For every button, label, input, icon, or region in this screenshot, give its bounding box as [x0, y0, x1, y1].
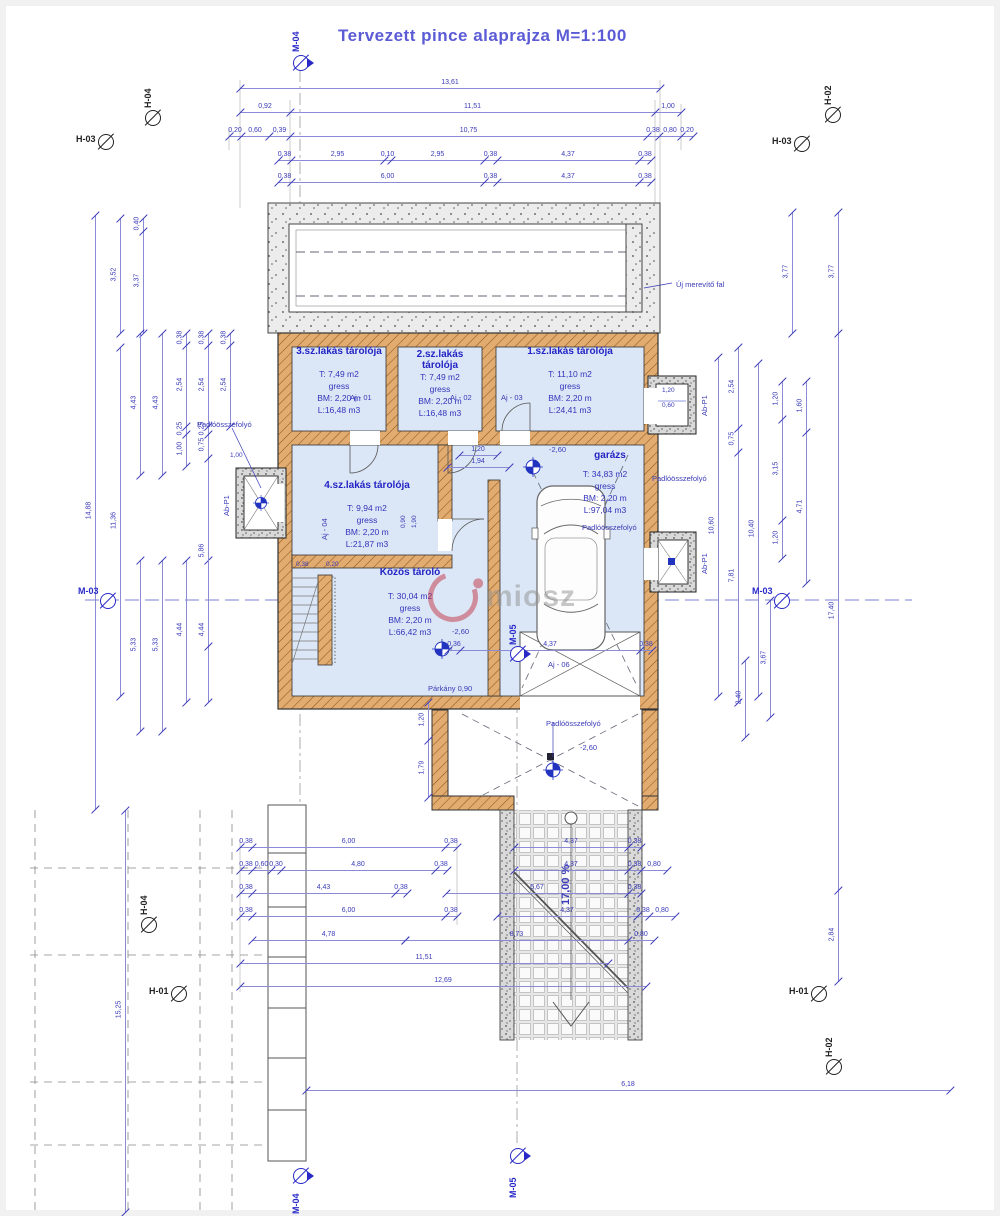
dimension-label: 6,00: [324, 906, 374, 915]
section-marker-label: H-01: [149, 986, 169, 996]
annotation-label: Padlóösszefolyó: [546, 719, 601, 728]
dimension-label: 0,92: [240, 102, 290, 111]
annotation-label: Ab-P1: [700, 395, 709, 416]
dimension-line: [428, 702, 429, 797]
dimension-line: [186, 333, 187, 466]
dimension-label: 12,69: [418, 976, 468, 985]
room-volume: L:24,41 m3: [496, 404, 644, 416]
annotation-label: Aj - 06: [548, 660, 570, 669]
annotation-label: Aj - 03: [501, 393, 523, 402]
room-volume: L:16,48 m3: [292, 404, 386, 416]
dimension-label: 1,94: [453, 457, 503, 466]
section-marker-label: M-05: [508, 1177, 518, 1198]
dimension-line: [230, 333, 231, 426]
dimension-label: 2,54: [220, 353, 229, 415]
dimension-line: [306, 1090, 950, 1091]
dimension-label: 0,38: [221, 837, 271, 846]
dimension-line: [240, 88, 660, 89]
dimension-label: 14,88: [85, 480, 94, 542]
dimension-line: [718, 357, 719, 696]
annotation-label: Ab-P1: [700, 553, 709, 574]
room-stats-storage4: T: 9,94 m2 gress BM: 2,20 m L:21,87 m3: [292, 502, 442, 550]
dimension-label: 4,78: [304, 930, 354, 939]
room-height: BM: 2,20 m: [292, 392, 386, 404]
dimension-line: [208, 333, 209, 646]
dimension-label: 8,73: [492, 930, 542, 939]
dimension-label: 0,30: [251, 860, 301, 869]
room-stats-storage1: T: 11,10 m2 gress BM: 2,20 m L:24,41 m3: [496, 368, 644, 416]
dimension-label: 3,67: [760, 626, 769, 688]
dimension-label: 0,36: [429, 640, 479, 649]
dimension-label: 13,61: [425, 78, 475, 87]
room-height: BM: 2,20 m: [555, 492, 655, 504]
section-marker-icon: [98, 134, 114, 150]
dimension-line: [186, 560, 187, 702]
dimension-label: 11,51: [448, 102, 498, 111]
annotation-label: 17,00 %: [560, 865, 572, 905]
dimension-label: 0,39: [255, 126, 305, 135]
dimension-label: 3,37: [133, 250, 142, 312]
dimension-line: [405, 940, 654, 941]
dimension-line: [782, 381, 783, 558]
annotation-label: Aj - 04: [320, 518, 329, 540]
dimension-label: 0,38: [610, 837, 660, 846]
section-marker-icon: [510, 1148, 526, 1164]
dimension-label: 4,43: [299, 883, 349, 892]
annotation-label: Padlóösszefolyó: [582, 523, 637, 532]
section-marker-icon: [293, 1168, 309, 1184]
annotation-label: -2,60: [549, 445, 566, 454]
annotation-label: Ab-P1: [222, 495, 231, 516]
section-marker-label: M-05: [508, 624, 518, 645]
dimension-line: [447, 467, 509, 468]
dimension-label: 4,43: [130, 372, 139, 434]
dimension-label: 0,38: [260, 150, 310, 159]
dimension-label: 0,38: [221, 906, 271, 915]
annotation-label: 0,90: [400, 515, 407, 528]
dimension-label: 4,71: [796, 475, 805, 537]
room-stats-garage: T: 34,83 m2 gress BM: 2,20 m L:97,04 m3: [555, 468, 655, 516]
dimension-label: 0,38: [620, 172, 670, 181]
dimension-line: [792, 212, 793, 333]
dimension-label: 1,00: [176, 418, 185, 480]
annotation-label: Padlóösszefolyó: [197, 420, 252, 429]
dimension-line: [162, 333, 163, 475]
section-marker-icon: [794, 136, 810, 152]
dimension-label: 1,60: [796, 374, 805, 436]
room-stats-storage3: T: 7,49 m2 gress BM: 2,20 m L:16,48 m3: [292, 368, 386, 416]
dimension-line: [125, 810, 126, 1212]
room-label-garage: garázs: [560, 450, 660, 461]
floor-plan-page: Tervezett pince alaprajza M=1:100: [0, 0, 1000, 1216]
dimension-line: [162, 560, 163, 731]
room-finish: gress: [292, 380, 386, 392]
section-marker-label: H-02: [823, 85, 833, 105]
room-volume: L:16,48 m3: [398, 407, 482, 419]
section-marker-label: M-03: [752, 586, 773, 596]
dimension-label: 0,80: [629, 860, 679, 869]
dimension-label: 2,40: [735, 666, 744, 728]
annotation-label: Padlóösszefolyó: [652, 474, 707, 483]
annotation-label: Aj - 01: [350, 393, 372, 402]
dimension-label: 1,00: [643, 102, 693, 111]
dimension-label: 4,37: [543, 150, 593, 159]
dimension-label: 1,20: [772, 368, 781, 430]
room-volume: L:97,04 m3: [555, 504, 655, 516]
dimension-line: [838, 212, 839, 981]
dimension-label: 0,10: [363, 150, 413, 159]
section-marker-label: H-04: [143, 88, 153, 108]
dimension-label: 0,38: [620, 150, 670, 159]
section-marker-icon: [171, 986, 187, 1002]
dimension-label: 3,52: [110, 243, 119, 305]
dimension-label: 2,95: [313, 150, 363, 159]
dimension-label: 1,20: [453, 445, 503, 454]
room-area: T: 9,94 m2: [292, 502, 442, 514]
dimension-label: 6,00: [324, 837, 374, 846]
dimension-label: 5,67: [512, 883, 562, 892]
dimension-line: [143, 218, 144, 333]
room-area: T: 11,10 m2: [496, 368, 644, 380]
dimension-line: [738, 347, 739, 702]
room-label-storage3: 3.sz.lakás tárolója: [292, 346, 386, 357]
dimension-label: 3,77: [782, 240, 791, 302]
dimension-line: [514, 870, 667, 871]
section-marker-label: M-03: [78, 586, 99, 596]
annotation-label: 0,60: [662, 402, 675, 409]
room-label-storage2: 2.sz.lakás tárolója: [398, 349, 482, 371]
room-height: BM: 2,20 m: [292, 526, 442, 538]
dimension-label: 15,25: [115, 979, 124, 1041]
annotation-label: 1,00: [230, 452, 243, 459]
dimension-line: [252, 940, 405, 941]
annotation-label: 1,20: [662, 387, 675, 394]
dimension-label: 4,37: [525, 640, 575, 649]
dimension-label: 5,86: [198, 520, 207, 582]
dimension-line: [514, 847, 641, 848]
section-marker-icon: [293, 55, 309, 71]
dimension-label: 0,20: [662, 126, 712, 135]
section-marker-label: H-03: [772, 136, 792, 146]
dimension-label: 0,75: [728, 408, 737, 470]
annotation-label: -2,60: [452, 627, 469, 636]
section-marker-label: H-04: [139, 895, 149, 915]
dimension-label: 4,44: [176, 599, 185, 661]
dimension-label: 0,38: [221, 883, 271, 892]
annotation-label: 0,20: [326, 561, 339, 568]
dimension-label: 4,43: [152, 372, 161, 434]
dimension-label: 6,00: [363, 172, 413, 181]
dimension-label: 0,38: [426, 837, 476, 846]
dimension-label: 0,38: [416, 860, 466, 869]
dimension-label: 0,38: [621, 640, 671, 649]
room-area: T: 34,83 m2: [555, 468, 655, 480]
annotation-label: Párkány 0,90: [428, 684, 472, 693]
room-label-storage1: 1.sz.lakás tárolója: [496, 346, 644, 357]
dimension-line: [140, 560, 141, 731]
section-marker-label: M-04: [291, 1193, 301, 1214]
dimension-label: 11,36: [110, 489, 119, 551]
dimension-line: [278, 182, 651, 183]
dimension-label: 0,80: [616, 930, 666, 939]
dimension-label: 11,51: [399, 953, 449, 962]
room-area: T: 7,49 m2: [398, 371, 482, 383]
annotation-label: Aj - 02: [450, 393, 472, 402]
section-marker-icon: [774, 593, 790, 609]
dimension-line: [120, 347, 121, 696]
room-volume: L:21,87 m3: [292, 538, 442, 550]
dimension-label: 0,80: [637, 906, 687, 915]
dimension-line: [240, 847, 457, 848]
dimension-label: 0,38: [610, 883, 660, 892]
dimension-label: 4,37: [542, 906, 592, 915]
watermark-text: miosz: [486, 580, 576, 614]
dimension-line: [446, 893, 641, 894]
section-marker-label: H-03: [76, 134, 96, 144]
room-label-storage4: 4.sz.lakás tárolója: [292, 480, 442, 491]
dimension-line: [745, 660, 746, 737]
section-marker-icon: [826, 1059, 842, 1075]
dimension-line: [806, 381, 807, 583]
dimension-line: [240, 893, 407, 894]
dimension-label: 3,15: [772, 437, 781, 499]
dimension-label: 4,37: [543, 172, 593, 181]
section-marker-icon: [825, 107, 841, 123]
dimension-label: 4,80: [333, 860, 383, 869]
dimension-label: 1,79: [418, 736, 427, 798]
dimension-label: 6,18: [603, 1080, 653, 1089]
section-marker-label: H-02: [824, 1037, 834, 1057]
section-marker-icon: [100, 593, 116, 609]
dimension-label: 0,38: [466, 172, 516, 181]
dimension-label: 0,38: [260, 172, 310, 181]
dimension-label: 5,33: [130, 613, 139, 675]
dimension-line: [240, 963, 608, 964]
section-marker-label: M-04: [291, 31, 301, 52]
annotation-label: 1,90: [411, 515, 418, 528]
dimension-line: [229, 136, 693, 137]
section-marker-label: H-01: [789, 986, 809, 996]
dimension-line: [459, 455, 497, 456]
dimension-label: 17,40: [828, 579, 837, 641]
section-marker-icon: [510, 646, 526, 662]
watermark-logo-icon: [420, 564, 486, 630]
dimension-label: 0,38: [376, 883, 426, 892]
dimension-label: 0,38: [466, 150, 516, 159]
section-marker-icon: [145, 110, 161, 126]
dimension-label: 0,40: [133, 192, 142, 254]
dimension-label: 7,81: [728, 545, 737, 607]
dimension-line: [240, 986, 646, 987]
dimension-label: 1,20: [772, 507, 781, 569]
dimension-line: [240, 112, 681, 113]
section-marker-icon: [141, 917, 157, 933]
dimension-label: 3,77: [828, 240, 837, 302]
dimension-label: 10,40: [748, 497, 757, 559]
room-finish: gress: [292, 514, 442, 526]
dimension-label: 5,33: [152, 613, 161, 675]
dimension-label: 10,75: [444, 126, 494, 135]
annotation-label: 0,38: [296, 561, 309, 568]
dimension-label: 2,84: [828, 903, 837, 965]
dimension-line: [240, 916, 457, 917]
room-finish: gress: [496, 380, 644, 392]
watermark: miosz: [428, 572, 576, 622]
dimension-line: [140, 333, 141, 475]
dimension-label: 10,60: [708, 494, 717, 556]
dimension-label: 2,95: [413, 150, 463, 159]
dimension-line: [278, 160, 651, 161]
room-finish: gress: [555, 480, 655, 492]
dimension-line: [95, 215, 96, 809]
dimension-line: [448, 650, 652, 651]
annotation-label: -2,60: [580, 743, 597, 752]
annotation-label: Új merevítő fal: [676, 280, 724, 289]
room-area: T: 7,49 m2: [292, 368, 386, 380]
dimension-line: [770, 600, 771, 717]
dimension-label: 0,38: [426, 906, 476, 915]
section-marker-icon: [811, 986, 827, 1002]
dimension-label: 4,37: [546, 837, 596, 846]
dimension-line: [120, 218, 121, 333]
dimension-label: 4,44: [198, 599, 207, 661]
